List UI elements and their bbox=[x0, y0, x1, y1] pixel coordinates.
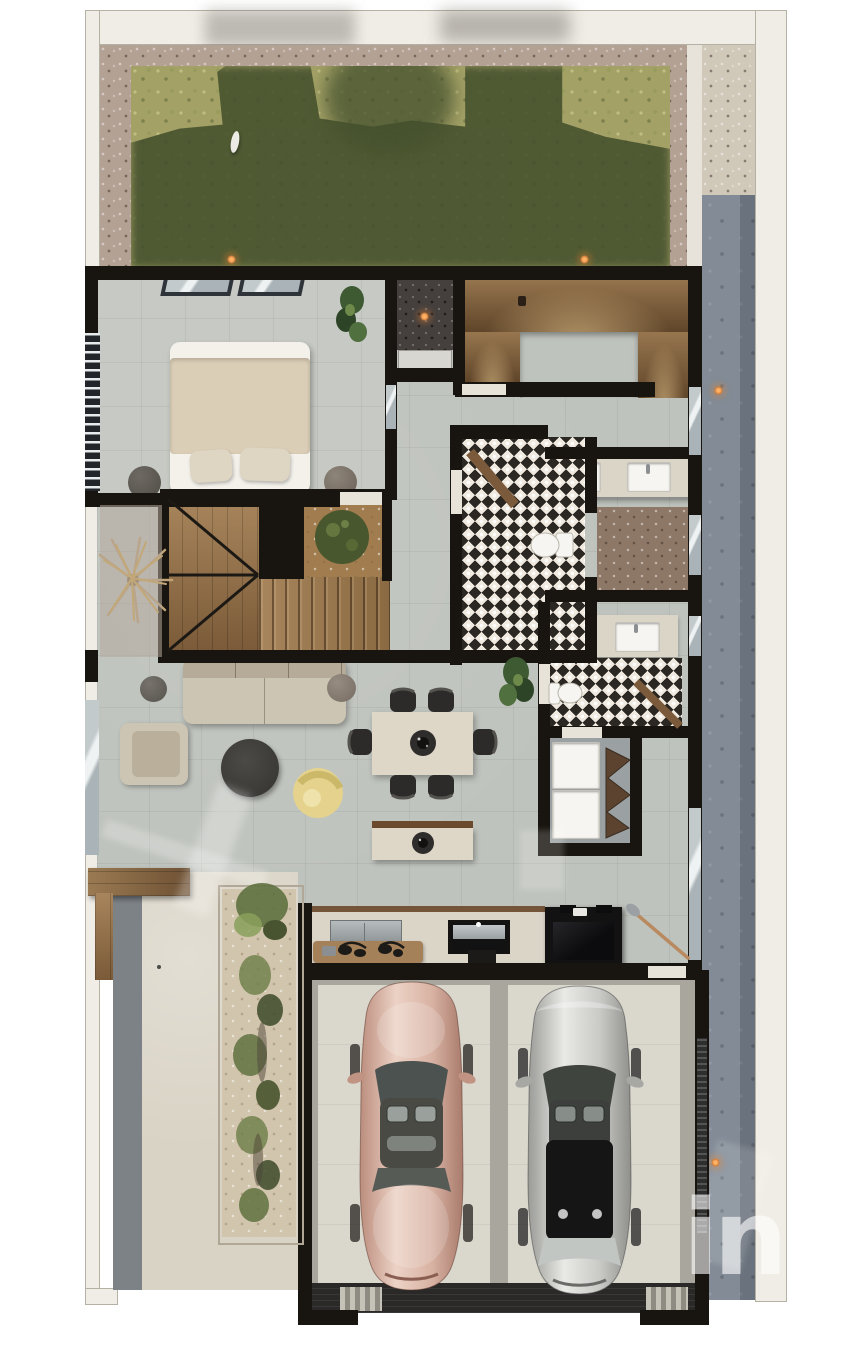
car-silver bbox=[514, 986, 645, 1294]
dining-plant bbox=[499, 657, 534, 706]
master-toilet bbox=[531, 533, 573, 557]
broom bbox=[624, 901, 688, 958]
laundry-items bbox=[606, 748, 630, 838]
kitchen-utensils bbox=[322, 942, 404, 957]
under-stair-bush bbox=[315, 510, 369, 564]
floor-plan-render: in bbox=[0, 0, 860, 1370]
bedroom-plant bbox=[336, 286, 367, 342]
shower-bench bbox=[470, 452, 515, 505]
walkway-planter-plants bbox=[233, 883, 288, 1222]
powder-toilet bbox=[549, 683, 582, 704]
island-bowl bbox=[412, 832, 434, 854]
watermark: in bbox=[683, 1186, 783, 1290]
centerpiece-bowl bbox=[410, 730, 436, 756]
car-rose bbox=[346, 982, 477, 1290]
accent-chair bbox=[293, 768, 343, 818]
stairs-winder-lines bbox=[168, 499, 258, 651]
detail-overlay bbox=[0, 0, 860, 1370]
powder-wood-ledge bbox=[636, 682, 680, 726]
